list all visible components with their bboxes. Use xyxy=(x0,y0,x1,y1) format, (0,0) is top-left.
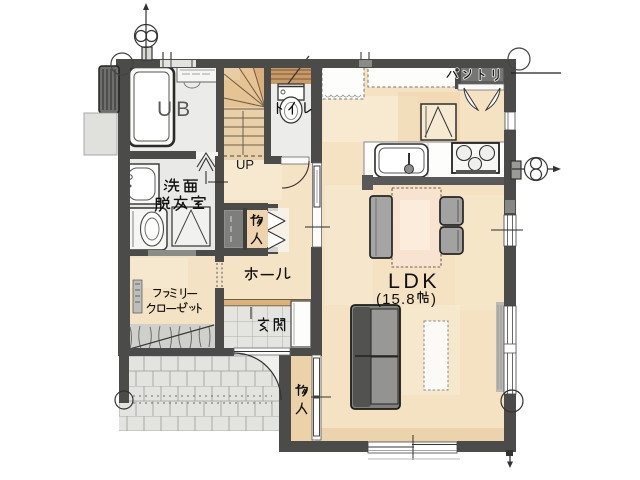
svg-text:UB: UB xyxy=(157,98,194,121)
svg-text:): ) xyxy=(431,291,436,308)
svg-text:LDK: LDK xyxy=(388,269,440,293)
svg-text:(15.8: (15.8 xyxy=(376,291,416,308)
svg-text:UP: UP xyxy=(236,157,254,172)
